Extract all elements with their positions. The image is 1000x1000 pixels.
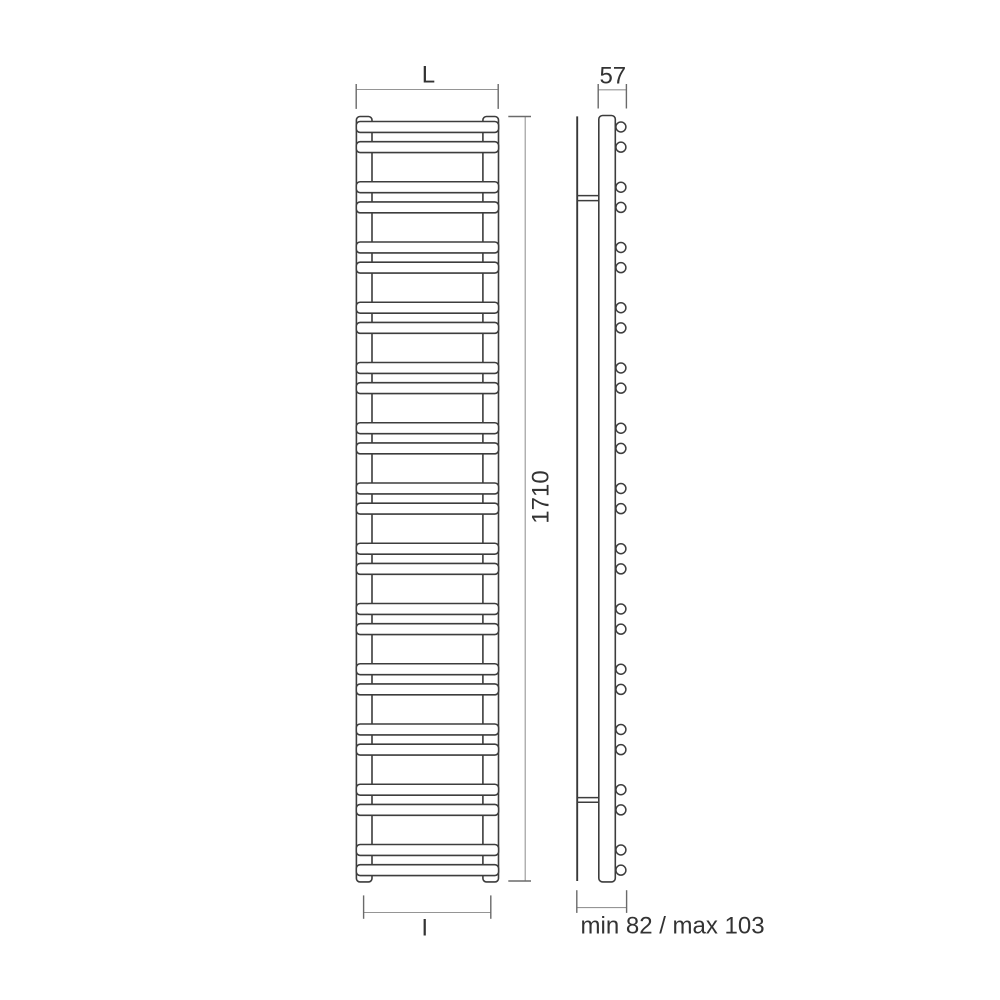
svg-text:1710: 1710 xyxy=(527,470,554,523)
svg-text:57: 57 xyxy=(599,63,626,90)
svg-text:L: L xyxy=(422,62,435,89)
svg-text:min 82 / max 103: min 82 / max 103 xyxy=(581,912,765,939)
svg-text:I: I xyxy=(421,915,428,942)
